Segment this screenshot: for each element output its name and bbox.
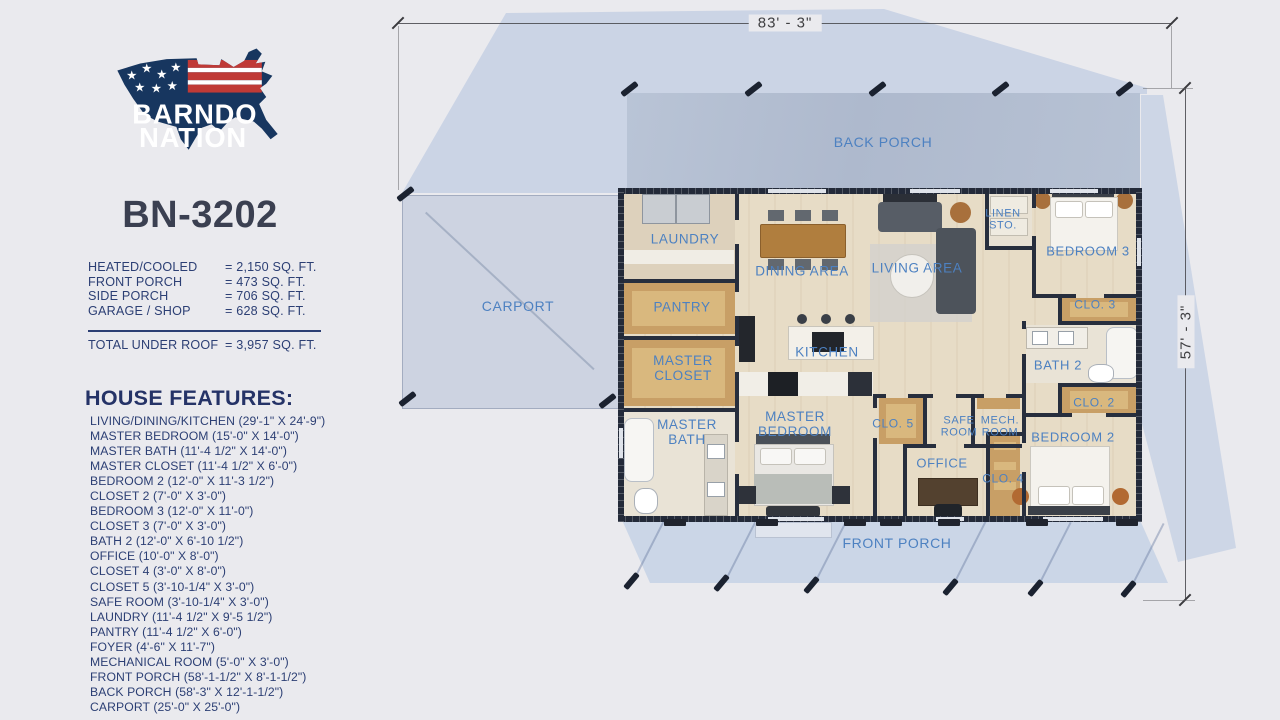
label-bedroom3: BEDROOM 3: [1046, 245, 1129, 260]
kitchen-fridge: [848, 372, 872, 396]
label-clo4: CLO. 4: [982, 472, 1024, 485]
svg-text:★: ★: [156, 67, 167, 81]
wall-segment: [1058, 321, 1136, 325]
area-row: FRONT PORCH = 473 SQ. FT.: [88, 275, 328, 289]
wall-segment: [1022, 321, 1026, 329]
dimension-height-label: 57' - 3": [1178, 296, 1195, 369]
feature-item: BATH 2 (12'-0" X 6'-10 1/2"): [90, 534, 400, 549]
label-master-closet: MASTER CLOSET: [640, 353, 726, 383]
feature-item: LAUNDRY (11'-4 1/2" X 9'-5 1/2"): [90, 610, 400, 625]
kitchen-stool: [845, 314, 855, 324]
extension-line: [1143, 88, 1193, 89]
feature-item: OFFICE (10'-0" X 8'-0"): [90, 549, 400, 564]
window: [1050, 189, 1098, 193]
office-desk: [918, 478, 978, 506]
feature-item: CLOSET 2 (7'-0" X 3'-0"): [90, 489, 400, 504]
porch-post: [942, 578, 959, 596]
svg-text:★: ★: [141, 61, 152, 75]
kitchen-stool: [797, 314, 807, 324]
area-row: GARAGE / SHOP = 628 SQ. FT.: [88, 304, 328, 318]
label-clo5: CLO. 5: [872, 417, 914, 430]
area-label: SIDE PORCH: [88, 289, 225, 303]
label-dining: DINING AREA: [755, 263, 849, 278]
pillow: [1038, 486, 1070, 505]
wall-segment: [1058, 383, 1136, 387]
porch-post: [1120, 580, 1137, 598]
nightstand: [1034, 192, 1051, 209]
feature-item: CLOSET 3 (7'-0" X 3'-0"): [90, 519, 400, 534]
laundry-counter: [622, 250, 734, 264]
area-value: = 706 SQ. FT.: [225, 289, 306, 303]
window: [768, 189, 826, 193]
closet4-shelf: [994, 462, 1016, 470]
floor-plan-sheet: 83' - 3" 57' - 3": [0, 0, 1280, 720]
label-mech-room: MECH. ROOM: [974, 415, 1026, 440]
feature-item: FRONT PORCH (58'-1-1/2" X 8'-1-1/2"): [90, 670, 400, 685]
pillow: [1072, 486, 1104, 505]
total-divider-line: [88, 330, 321, 332]
label-bath2: BATH 2: [1034, 359, 1082, 374]
porch-column-stub: [664, 519, 686, 526]
master-blanket: [754, 474, 832, 504]
features-header: HOUSE FEATURES:: [85, 386, 293, 411]
window: [1043, 517, 1103, 521]
feature-item: MASTER BATH (11'-4 1/2" X 14'-0"): [90, 444, 400, 459]
dining-chair: [768, 210, 784, 221]
extension-line: [1171, 26, 1172, 88]
extension-line: [398, 26, 399, 190]
wall-segment: [624, 336, 739, 340]
area-value: = 473 SQ. FT.: [225, 275, 306, 289]
feature-item: FOYER (4'-6" X 11'-7"): [90, 640, 400, 655]
flag-stripes: [188, 60, 262, 93]
label-master-bath: MASTER BATH: [651, 417, 723, 447]
washer: [642, 194, 676, 224]
wall-segment: [735, 244, 739, 292]
area-label: GARAGE / SHOP: [88, 304, 225, 318]
svg-text:★: ★: [167, 79, 178, 93]
wall-segment: [956, 394, 984, 398]
wall-segment: [735, 316, 739, 346]
feature-item: CLOSET 5 (3'-10-1/4" X 3'-0"): [90, 580, 400, 595]
master-sink: [707, 482, 725, 497]
mech-room-shelf: [977, 398, 1020, 409]
porch-post: [1027, 579, 1044, 597]
side-table: [950, 202, 971, 223]
feature-item: CLOSET 4 (3'-0" X 8'-0"): [90, 564, 400, 579]
wall-segment: [624, 279, 739, 283]
svg-text:★: ★: [134, 81, 145, 95]
porch-column-stub: [756, 519, 778, 526]
bed2-headboard: [1028, 506, 1110, 515]
sofa-loveseat: [878, 202, 942, 232]
window: [619, 428, 623, 458]
master-tub: [624, 418, 654, 482]
wall-segment: [1032, 294, 1076, 298]
wall-segment: [877, 394, 886, 398]
feature-item: LIVING/DINING/KITCHEN (29'-1" X 24'-9"): [90, 414, 400, 429]
wall-segment: [1106, 413, 1136, 417]
label-carport: CARPORT: [482, 299, 554, 315]
total-row: TOTAL UNDER ROOF = 3,957 SQ. FT.: [88, 338, 328, 352]
wall-segment: [624, 408, 739, 412]
features-list: LIVING/DINING/KITCHEN (29'-1" X 24'-9") …: [90, 414, 400, 715]
area-row: SIDE PORCH = 706 SQ. FT.: [88, 289, 328, 303]
feature-item: MASTER CLOSET (11'-4 1/2" X 6'-0"): [90, 459, 400, 474]
svg-text:★: ★: [151, 82, 162, 96]
feature-item: BEDROOM 2 (12'-0" X 11'-3 1/2"): [90, 474, 400, 489]
wall-segment: [735, 474, 739, 520]
area-label: FRONT PORCH: [88, 275, 225, 289]
feature-item: CARPORT (25'-0" X 25'-0"): [90, 700, 400, 715]
label-pantry: PANTRY: [653, 299, 710, 314]
nightstand: [738, 486, 756, 504]
wall-segment: [735, 372, 739, 410]
master-toilet: [634, 488, 658, 514]
wall-segment: [1006, 394, 1022, 398]
wall-segment: [1032, 236, 1036, 298]
bath2-sink: [1058, 331, 1074, 345]
nightstand: [832, 486, 850, 504]
window: [1137, 238, 1141, 266]
label-kitchen: KITCHEN: [795, 344, 858, 359]
wall-segment: [903, 444, 936, 448]
exterior-wall-left: [618, 188, 624, 522]
pillow: [794, 448, 826, 465]
area-label: HEATED/COOLED: [88, 260, 225, 274]
window: [910, 189, 960, 193]
porch-post: [713, 574, 730, 592]
pillow: [1055, 201, 1083, 218]
label-office: OFFICE: [916, 457, 967, 472]
wall-segment: [903, 448, 907, 520]
total-value: = 3,957 SQ. FT.: [225, 338, 317, 352]
wall-segment: [964, 444, 1022, 448]
wall-segment: [908, 394, 933, 398]
bath2-sink: [1032, 331, 1048, 345]
pillow: [760, 448, 792, 465]
feature-item: BACK PORCH (58'-3" X 12'-1-1/2"): [90, 685, 400, 700]
porch-shadow-line: [633, 517, 666, 580]
dining-chair: [795, 210, 811, 221]
label-bedroom2: BEDROOM 2: [1031, 431, 1114, 446]
feature-item: SAFE ROOM (3'-10-1/4" X 3'-0"): [90, 595, 400, 610]
extension-line: [1143, 600, 1195, 601]
dryer: [676, 194, 710, 224]
wall-segment: [735, 194, 739, 220]
wall-segment: [985, 246, 1032, 250]
feature-item: PANTRY (11'-4 1/2" X 6'-0"): [90, 625, 400, 640]
wall-segment: [1032, 194, 1036, 208]
logo-text-line2: NATION: [139, 122, 247, 153]
dimension-width-label: 83' - 3": [749, 15, 822, 32]
area-row: HEATED/COOLED = 2,150 SQ. FT.: [88, 260, 328, 274]
feature-item: MASTER BEDROOM (15'-0" X 14'-0"): [90, 429, 400, 444]
label-living: LIVING AREA: [872, 260, 963, 275]
label-front-porch: FRONT PORCH: [842, 536, 951, 552]
label-linen: LINEN STO.: [980, 208, 1026, 233]
label-master-bedroom: MASTER BEDROOM: [739, 409, 851, 439]
label-laundry: LAUNDRY: [651, 231, 719, 246]
label-clo3: CLO. 3: [1074, 298, 1116, 311]
porch-shadow-line: [1131, 523, 1164, 586]
barndo-nation-logo: ★★★ ★★★★ BARNDO NATION: [105, 38, 290, 170]
label-clo2: CLO. 2: [1073, 396, 1115, 409]
feature-item: MECHANICAL ROOM (5'-0" X 3'-0"): [90, 655, 400, 670]
svg-text:★: ★: [170, 60, 181, 74]
kitchen-range: [768, 372, 798, 396]
bath2-toilet: [1088, 364, 1114, 383]
kitchen-stool: [821, 314, 831, 324]
nightstand: [1116, 192, 1133, 209]
porch-shadow-line: [1038, 522, 1071, 585]
wall-segment: [1022, 413, 1072, 417]
area-value: = 2,150 SQ. FT.: [225, 260, 317, 274]
porch-post: [803, 576, 820, 594]
pillow: [1085, 201, 1113, 218]
porch-shadow-line: [953, 521, 986, 584]
wall-segment: [923, 398, 927, 448]
total-label: TOTAL UNDER ROOF: [88, 338, 225, 352]
porch-shadow-line: [724, 519, 757, 582]
feature-item: BEDROOM 3 (12'-0" X 11'-0"): [90, 504, 400, 519]
porch-post: [623, 572, 640, 590]
porch-column-stub: [844, 519, 866, 526]
nightstand: [1112, 488, 1129, 505]
area-value: = 628 SQ. FT.: [225, 304, 306, 318]
porch-column-stub: [938, 519, 960, 526]
wall-segment: [873, 438, 877, 520]
dining-table: [760, 224, 846, 258]
porch-column-stub: [1026, 519, 1048, 526]
dining-chair: [822, 210, 838, 221]
wall-segment: [1058, 387, 1062, 415]
nightstand: [1012, 488, 1029, 505]
porch-column-stub: [880, 519, 902, 526]
plan-number: BN-3202: [85, 194, 315, 237]
label-back-porch: BACK PORCH: [834, 135, 933, 151]
kitchen-corner-cabinet: [739, 316, 755, 362]
porch-column-stub: [1116, 519, 1138, 526]
